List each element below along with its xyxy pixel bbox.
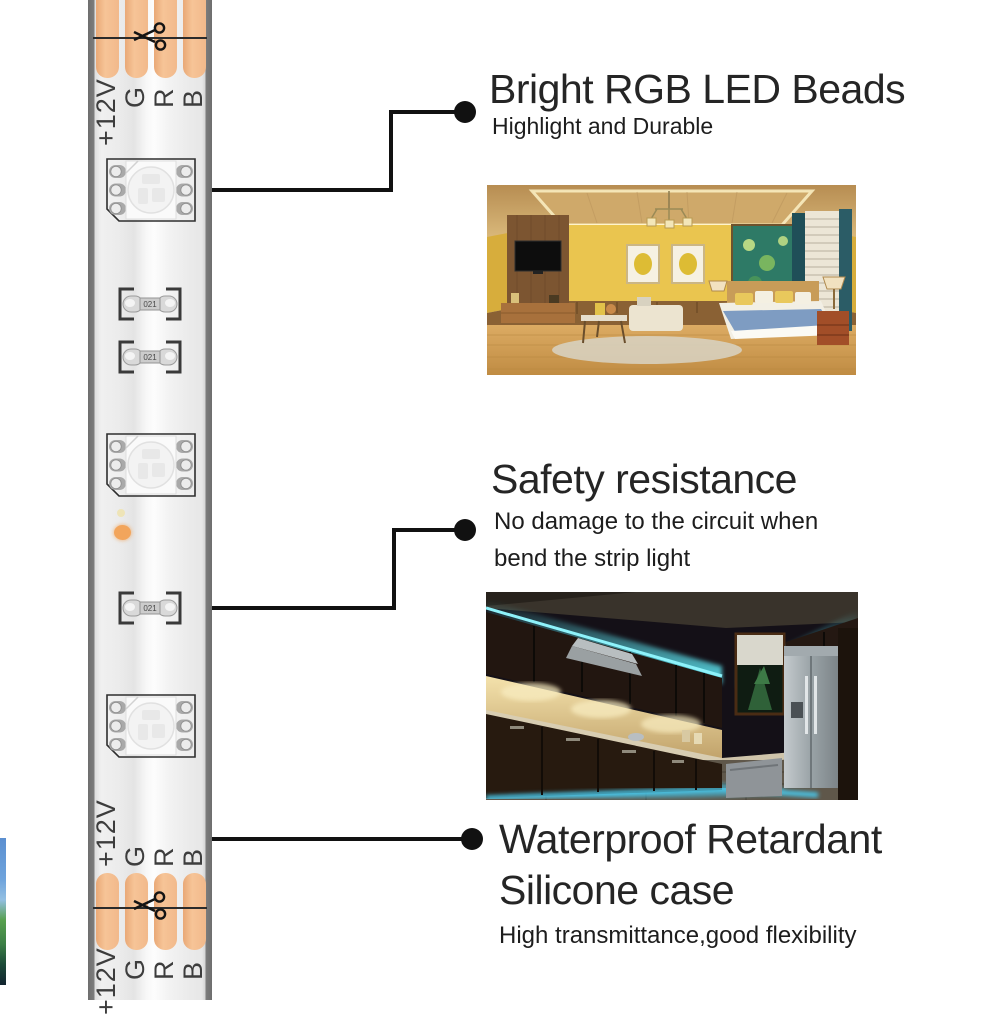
pin-label-r: R (151, 960, 178, 981)
callout-line (392, 528, 396, 610)
led-strip: +12V G R B (88, 0, 212, 1000)
smd-resistor: 021 (115, 590, 185, 626)
callout-line (212, 188, 393, 192)
callout-line (212, 837, 464, 841)
callout-subtitle: bend the strip light (494, 545, 690, 573)
kitchen-photo (486, 592, 858, 800)
copper-pad (96, 873, 119, 950)
pin-label-g: G (122, 86, 149, 108)
scissors-icon (132, 890, 172, 924)
pin-label-12v: +12V (93, 78, 120, 146)
callout-dot (461, 828, 483, 850)
pin-label-g: G (122, 958, 149, 980)
pin-label-r: R (151, 88, 178, 109)
pin-label-b: B (180, 848, 207, 867)
led-chip (106, 433, 196, 497)
callout-subtitle: Highlight and Durable (492, 113, 713, 140)
scissors-icon (132, 21, 172, 55)
resistor-marking: 021 (143, 604, 157, 613)
pin-label-b: B (180, 89, 207, 108)
led-chip (106, 158, 196, 222)
smd-resistor: 021 (115, 286, 185, 322)
smd-resistor: 021 (115, 339, 185, 375)
led-chip (106, 694, 196, 758)
callout-title: Silicone case (499, 867, 734, 913)
callout-dot (454, 519, 476, 541)
callout-line (392, 528, 456, 532)
copper-pad (183, 0, 206, 78)
bedroom-photo (487, 185, 856, 375)
orange-marker-dot (114, 525, 131, 540)
resistor-marking: 021 (143, 300, 157, 309)
pin-label-12v: +12V (93, 799, 120, 867)
pin-label-r: R (151, 847, 178, 868)
callout-subtitle: No damage to the circuit when (494, 508, 818, 536)
copper-pad (96, 0, 119, 78)
copper-pad (183, 873, 206, 950)
callout-title: Safety resistance (491, 456, 797, 502)
pin-label-b: B (180, 961, 207, 980)
pin-label-12v: +12V (93, 947, 120, 1015)
resistor-marking: 021 (143, 353, 157, 362)
callout-title: Bright RGB LED Beads (489, 66, 905, 112)
callout-subtitle: High transmittance,good flexibility (499, 922, 857, 950)
callout-dot (454, 101, 476, 123)
callout-line (212, 606, 396, 610)
pin-label-g: G (122, 845, 149, 867)
callout-title: Waterproof Retardant (499, 816, 882, 862)
photo-edge-sliver (0, 838, 6, 985)
faint-dot (117, 509, 125, 517)
callout-line (389, 110, 457, 114)
callout-line (389, 110, 393, 192)
